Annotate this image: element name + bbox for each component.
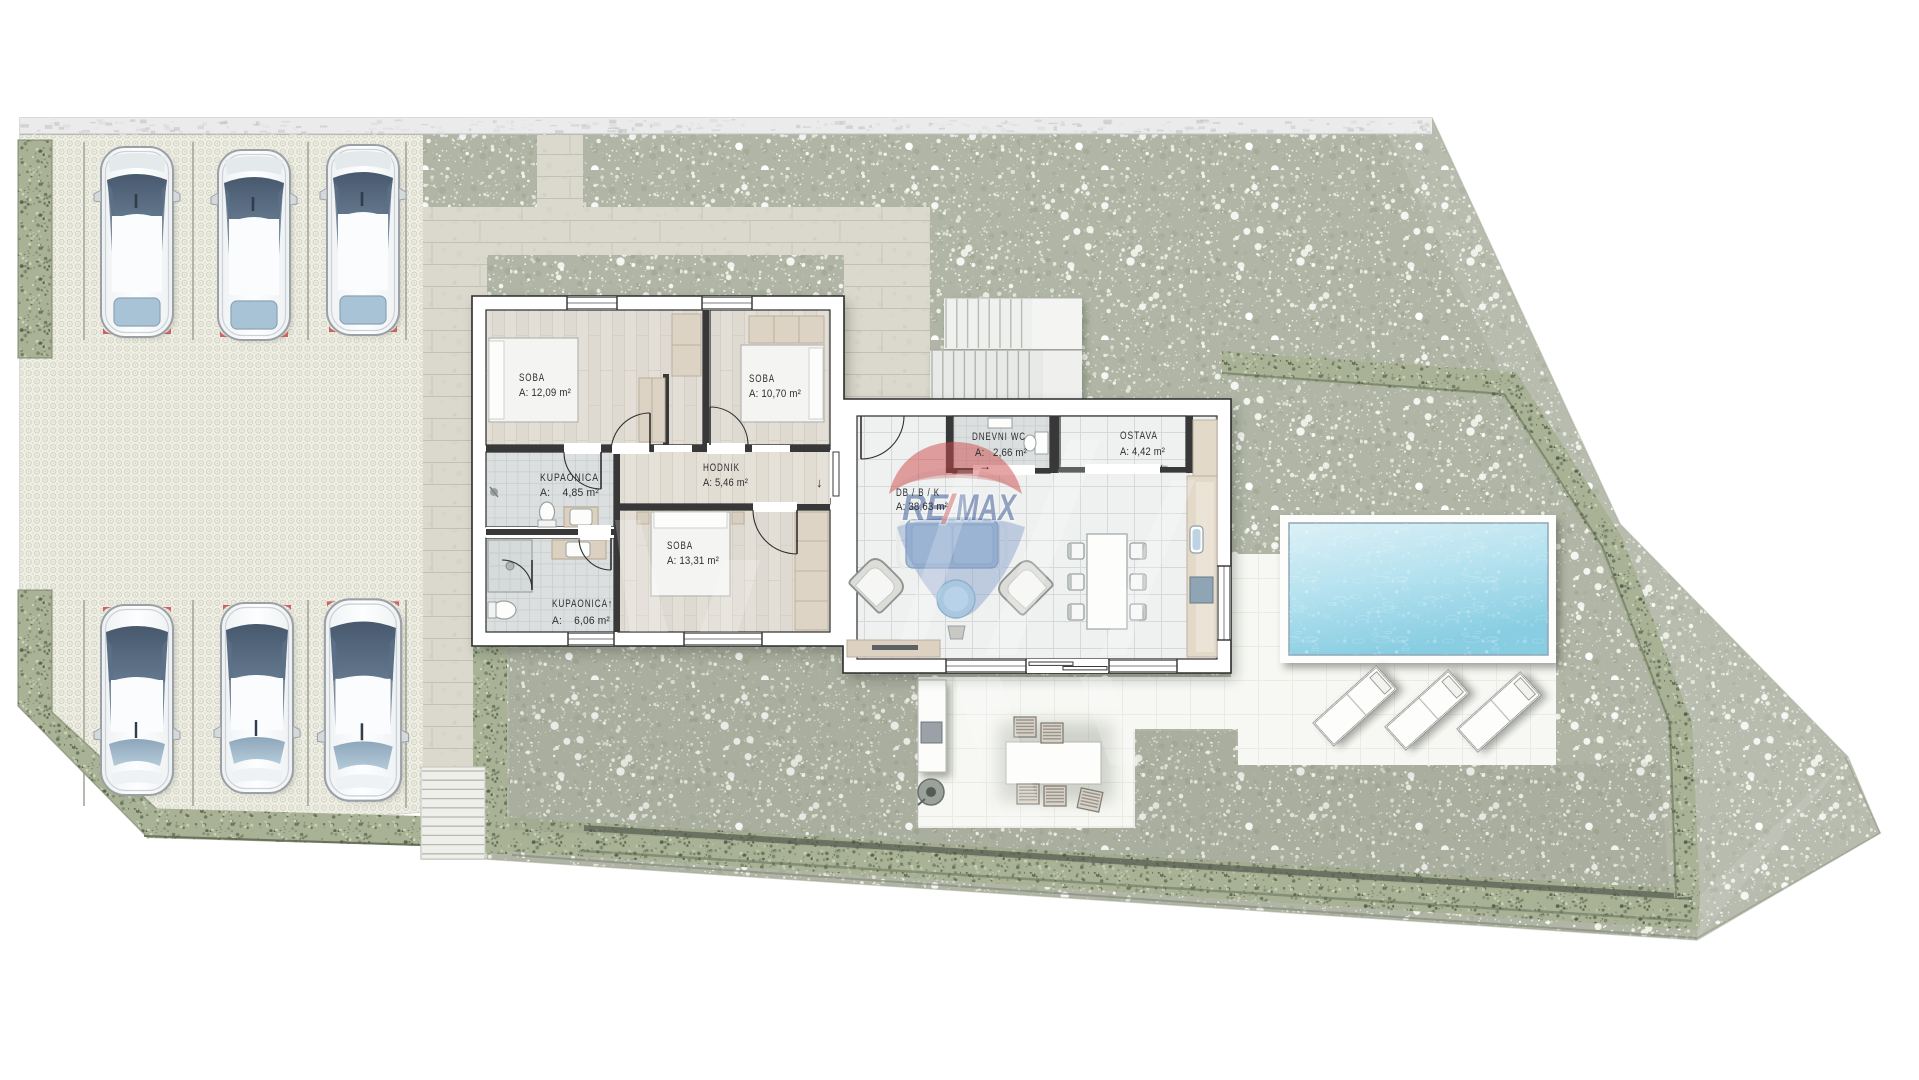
svg-text:→: → bbox=[979, 459, 991, 473]
svg-text:SOBA: SOBA bbox=[667, 540, 693, 552]
svg-text:KUPAONICA↑: KUPAONICA↑ bbox=[552, 598, 613, 610]
svg-text:A: 6,06 m²: A: 6,06 m² bbox=[552, 615, 610, 627]
svg-text:A: 38,63 m²: A: 38,63 m² bbox=[896, 501, 948, 513]
svg-text:↓: ↓ bbox=[816, 475, 823, 490]
svg-text:A: 2,66 m²: A: 2,66 m² bbox=[975, 447, 1027, 459]
svg-text:A: 13,31 m²: A: 13,31 m² bbox=[667, 555, 719, 567]
svg-text:←: ← bbox=[1158, 457, 1170, 471]
svg-text:SOBA: SOBA bbox=[519, 372, 545, 384]
svg-text:A: 10,70 m²: A: 10,70 m² bbox=[749, 388, 801, 400]
svg-text:OSTAVA: OSTAVA bbox=[1120, 430, 1158, 442]
svg-text:KUPAONICA: KUPAONICA bbox=[540, 472, 599, 484]
svg-text:DNEVNI WC: DNEVNI WC bbox=[972, 431, 1026, 443]
svg-text:SOBA: SOBA bbox=[749, 373, 775, 385]
svg-text:A: 5,46 m²: A: 5,46 m² bbox=[703, 477, 748, 489]
svg-text:A: 4,85 m²: A: 4,85 m² bbox=[540, 487, 599, 499]
svg-text:A: 12,09 m²: A: 12,09 m² bbox=[519, 387, 571, 399]
svg-text:HODNIK: HODNIK bbox=[703, 462, 740, 474]
svg-text:DB / B / K: DB / B / K bbox=[896, 487, 940, 499]
